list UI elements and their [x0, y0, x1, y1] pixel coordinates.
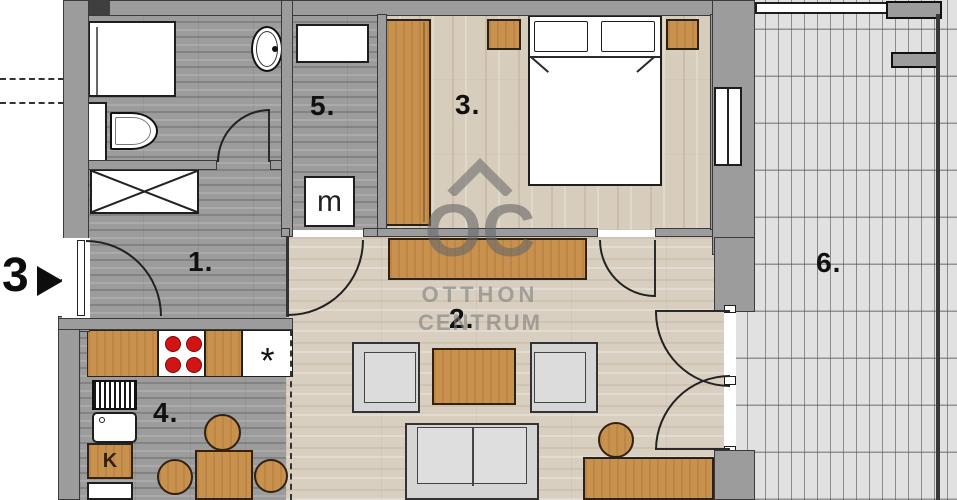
dining-chair-left: [157, 459, 193, 495]
kitchen-cabinet: [87, 482, 133, 500]
room5-shelf: [296, 24, 369, 63]
terrace-railing-top: [755, 2, 888, 14]
room-label-1: 1.: [188, 246, 213, 278]
kitchen-sink: [92, 412, 137, 443]
desk-chair: [598, 422, 634, 458]
entrance-door-leaf: [77, 240, 85, 316]
wall-bathroom-room5: [281, 0, 293, 237]
dish-drainer: [92, 380, 137, 410]
entrance-number: 3: [2, 248, 29, 303]
kitchen-counter-left: [87, 330, 158, 377]
kitchen-boundary-dashed-line: [290, 330, 292, 500]
wall-right-door-top: [714, 237, 755, 312]
washbasin-drain-icon: [272, 46, 278, 52]
wall-bedroom-bottom-right: [655, 228, 717, 237]
burner-icon: [165, 357, 181, 373]
pillow-right: [601, 21, 655, 52]
room-label-3: 3.: [455, 89, 480, 121]
wardrobe-x-icon: [92, 171, 197, 212]
kitchen-counter-mid: [205, 330, 242, 377]
armchair-right: [530, 342, 598, 413]
washing-machine: m: [304, 176, 355, 227]
sink-tap-icon: [99, 417, 105, 423]
hall-wardrobe: [90, 169, 199, 214]
wall-room5-bedroom: [377, 14, 387, 237]
armchair-right-seat: [534, 352, 586, 403]
terrace-divider-block-1: [886, 1, 942, 19]
dining-chair-right: [254, 459, 288, 493]
dishwasher: *: [242, 330, 293, 377]
sideboard: [388, 238, 587, 280]
sofa-cushion-divider: [472, 428, 474, 486]
entrance-arrow-icon: [37, 266, 63, 296]
room-label-2: 2.: [449, 303, 474, 335]
bedroom-wardrobe: [385, 19, 431, 226]
room-label-5: 5.: [310, 90, 335, 122]
dishwasher-star-label: *: [260, 342, 274, 366]
shower: [88, 21, 176, 97]
wall-kitchen-left: [58, 318, 80, 500]
washing-machine-label: m: [317, 185, 342, 219]
wall-left-upper: [63, 0, 89, 240]
fridge: K: [87, 443, 133, 479]
wall-bathroom-bottom-left: [88, 160, 217, 170]
terrace-divider-block-2: [891, 52, 938, 68]
armchair-left: [352, 342, 420, 413]
armchair-left-seat: [364, 352, 416, 403]
terrace-right-edge-line: [936, 14, 940, 500]
wardrobe-door-line: [423, 22, 425, 222]
wall-room5-bottom-left: [281, 228, 290, 237]
nightstand-right: [666, 19, 699, 50]
burner-icon: [186, 357, 202, 373]
shower-glass-line: [96, 27, 98, 95]
bedroom-terrace-window: [714, 87, 742, 166]
coffee-table: [432, 348, 516, 405]
blanket-edge-line: [530, 56, 660, 58]
wall-top: [63, 0, 714, 16]
wall-bedroom-bottom-left: [377, 228, 598, 237]
room-label-4: 4.: [153, 397, 178, 429]
wall-kitchen-top: [58, 318, 293, 330]
stove: [158, 330, 205, 377]
pillow-left: [534, 21, 588, 52]
dining-table: [195, 450, 253, 500]
window-center-line: [727, 89, 729, 164]
section-line-lower: [0, 102, 64, 104]
terrace-door-floor-patch: [734, 305, 753, 453]
toilet-cistern: [87, 102, 107, 163]
section-line-upper: [0, 78, 64, 80]
room-label-6: 6.: [816, 247, 841, 279]
burner-icon: [165, 336, 181, 352]
dining-chair-top: [204, 414, 241, 451]
terrace-floor: [752, 0, 957, 500]
desk: [583, 457, 714, 500]
wall-right-door-bottom: [714, 450, 755, 500]
washbasin: [251, 26, 283, 72]
floor-plan: 3 * K: [0, 0, 957, 500]
toilet-bowl-inner: [115, 117, 151, 145]
burner-icon: [186, 336, 202, 352]
nightstand-left: [487, 19, 521, 50]
fridge-label: K: [103, 450, 117, 473]
sofa: [405, 423, 539, 500]
